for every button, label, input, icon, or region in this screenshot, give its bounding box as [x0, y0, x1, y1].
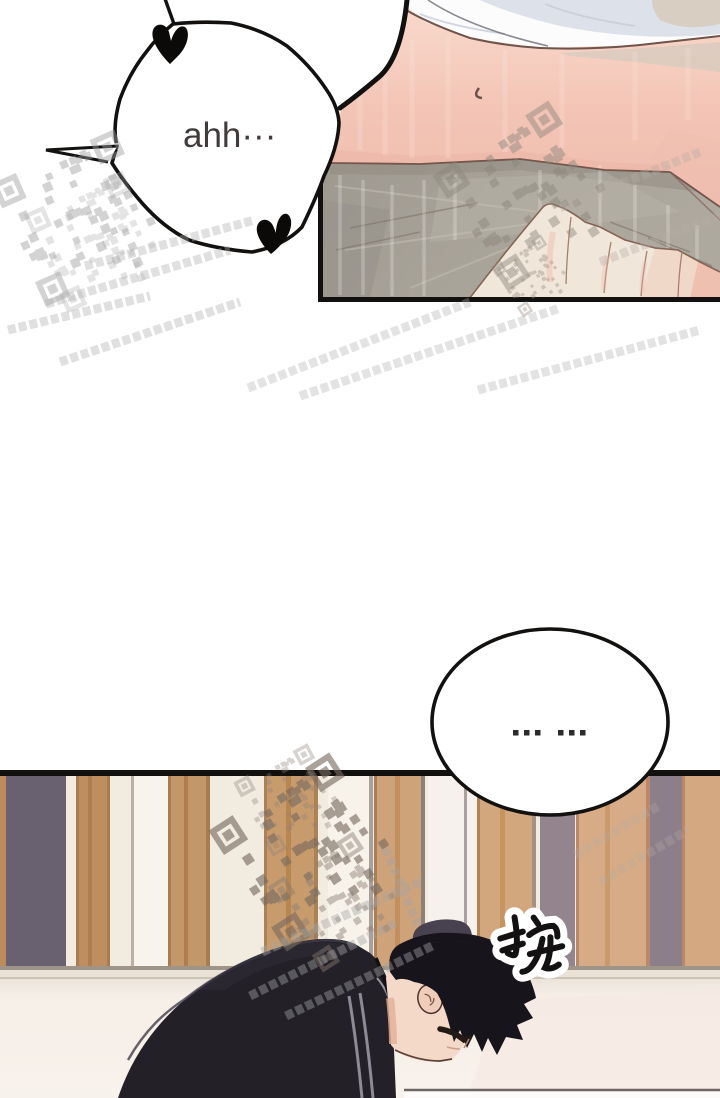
- svg-text:ahh···: ahh···: [183, 116, 276, 155]
